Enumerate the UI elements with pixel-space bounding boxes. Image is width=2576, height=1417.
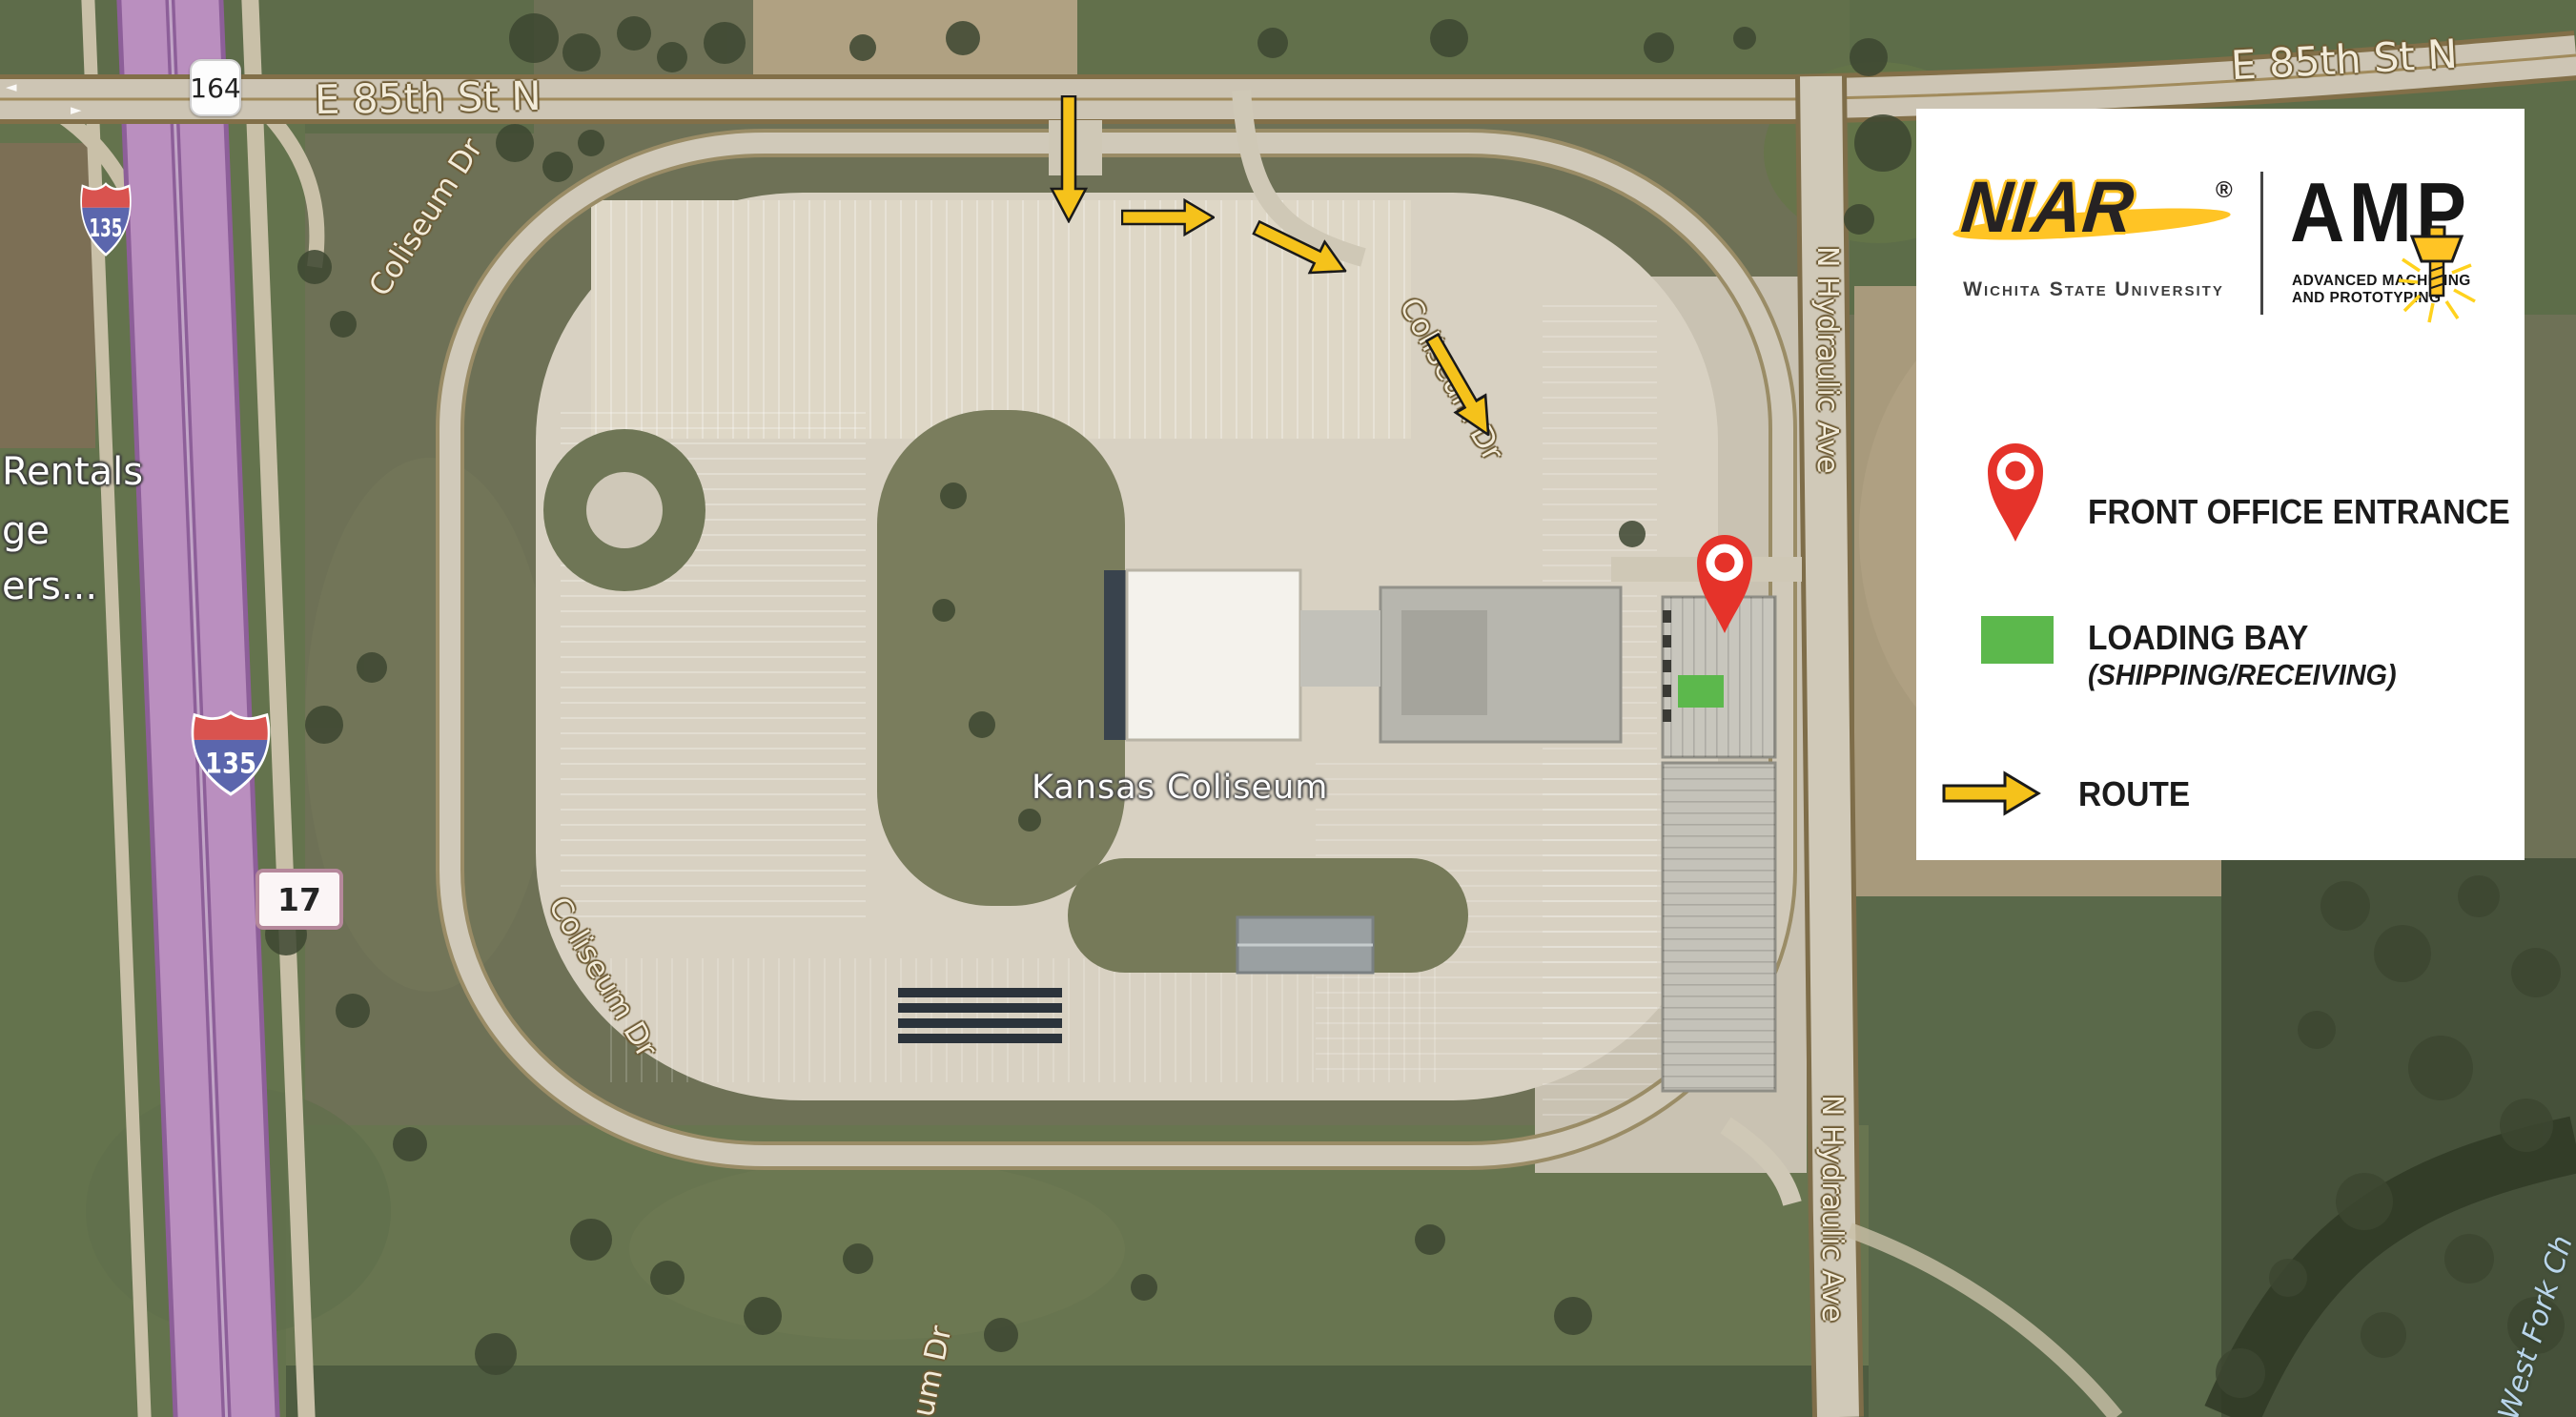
lane-arrow-left-icon: ◄	[6, 78, 17, 95]
interstate-135-number: 135	[205, 747, 256, 780]
poi-label-ge: ge	[2, 509, 50, 553]
map-canvas: ◄ ► E 85th St N E 85th St N Coliseum Dr …	[0, 0, 2576, 1417]
place-label-kansas-coliseum: Kansas Coliseum	[1032, 769, 1328, 807]
loading-bay-marker	[1678, 675, 1724, 708]
registered-mark: ®	[2216, 177, 2233, 204]
route-arrow-right-icon	[1121, 198, 1215, 236]
legend-front-office-label: FRONT OFFICE ENTRANCE	[2088, 492, 2510, 532]
logo-divider	[2260, 172, 2263, 315]
legend-panel: NIAR ® Wichita State University AMP ADVA…	[1916, 109, 2525, 860]
street-label-e85th-west: E 85th St N	[315, 72, 542, 123]
legend-pin-icon	[1982, 439, 2049, 544]
route-164-shield: 164	[190, 59, 241, 116]
poi-label-rentals: Rentals	[2, 450, 143, 494]
legend-route-label: ROUTE	[2078, 774, 2190, 814]
drill-bit-icon	[2391, 223, 2486, 330]
legend-loading-bay-swatch	[1981, 616, 2054, 664]
street-label-hydraulic-north: N Hydraulic Ave	[1810, 246, 1844, 561]
niar-logo: NIAR	[1957, 166, 2137, 249]
interstate-135-shield-north: 135	[76, 181, 135, 257]
interstate-135-shield-south: 135	[185, 709, 276, 797]
street-label-hydraulic-south: N Hydraulic Ave	[1815, 1095, 1849, 1409]
marker-17-shield: 17	[256, 869, 343, 930]
interstate-135-number: 135	[90, 214, 123, 242]
route-arrow-down-icon	[1050, 95, 1088, 223]
legend-route-arrow-icon	[1941, 769, 2042, 818]
legend-shipping-label: (SHIPPING/RECEIVING)	[2088, 658, 2397, 692]
route-164-number: 164	[190, 72, 240, 104]
poi-label-ers: ers...	[2, 565, 97, 608]
university-name: Wichita State University	[1954, 278, 2233, 301]
front-office-pin-icon	[1691, 530, 1758, 635]
lane-arrow-right-icon: ►	[71, 101, 82, 118]
legend-loading-bay-label: LOADING BAY	[2088, 618, 2308, 658]
marker-17-number: 17	[277, 881, 321, 918]
